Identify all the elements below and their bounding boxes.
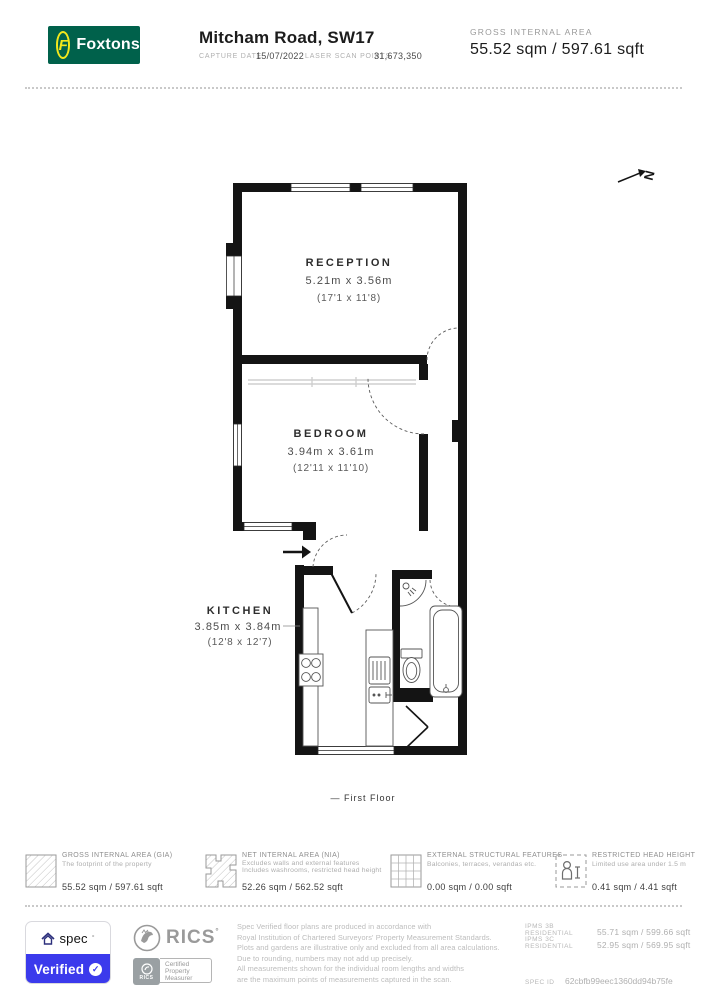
legend-item-gia: GROSS INTERNAL AREA (GIA) The footprint … <box>25 852 195 898</box>
legend-nia-desc1: Excludes walls and external features <box>242 860 382 867</box>
rics-block: RICS° RICS Certified Property Measurer <box>133 924 233 985</box>
spec-id-row: SPEC ID 62cbfb99eec1360dd94b75fe <box>525 971 673 989</box>
disclaimer-text: Spec Verified floor plans are produced i… <box>237 922 507 986</box>
ipms-3b-row: IPMS 3B RESIDENTIAL 55.71 sqm / 599.66 s… <box>525 923 690 937</box>
footer-separator <box>25 905 682 907</box>
disclaimer-line: Spec Verified floor plans are produced i… <box>237 922 507 933</box>
hatched-square-icon <box>25 854 57 888</box>
spec-verified-label: Verified <box>34 962 84 977</box>
rics-small-wordmark: RICS <box>140 975 154 981</box>
legend-gia-desc: The footprint of the property <box>62 861 202 868</box>
reception-metric: 5.21m x 3.56m <box>305 275 392 287</box>
rics-shield-icon: RICS <box>133 958 160 985</box>
rics-wordmark: RICS <box>166 927 215 948</box>
kitchen-name: KITCHEN <box>207 605 273 617</box>
spec-house-icon <box>41 932 55 945</box>
person-dashed-square-icon <box>555 854 587 888</box>
cert-line-1: Certified <box>165 961 211 968</box>
spec-verified-badge: spec° Verified ✓ <box>25 921 111 984</box>
rics-certified-badge: RICS Certified Property Measurer <box>133 958 233 985</box>
legend-nia-value: 52.26 sqm / 562.52 sqft <box>242 882 343 892</box>
legend-item-esf: EXTERNAL STRUCTURAL FEATURES Balconies, … <box>390 852 550 898</box>
hatched-plan-icon <box>205 854 237 888</box>
legend-esf-title: EXTERNAL STRUCTURAL FEATURES <box>427 852 567 859</box>
ipms-3c-label: IPMS 3C RESIDENTIAL <box>525 936 597 950</box>
disclaimer-line: Royal Institution of Chartered Surveyors… <box>237 933 507 944</box>
spec-id-label: SPEC ID <box>525 979 555 986</box>
floor-caption: — First Floor <box>330 793 395 803</box>
legend-rhh-desc: Limited use area under 1.5 m <box>592 861 707 868</box>
disclaimer-line: Due to rounding, numbers may not add up … <box>237 954 507 965</box>
cert-line-2: Property <box>165 968 211 975</box>
north-label: N <box>641 169 658 182</box>
spec-id-value: 62cbfb99eec1360dd94b75fe <box>565 976 673 986</box>
kitchen-fixtures <box>299 608 393 746</box>
bathroom-fixtures <box>400 580 462 697</box>
legend-gia-value: 55.52 sqm / 597.61 sqft <box>62 882 163 892</box>
bedroom-metric: 3.94m x 3.61m <box>287 446 374 458</box>
legend-rhh-value: 0.41 sqm / 4.41 sqft <box>592 882 677 892</box>
ipms-3c-row: IPMS 3C RESIDENTIAL 52.95 sqm / 569.95 s… <box>525 936 690 950</box>
legend-esf-value: 0.00 sqm / 0.00 sqft <box>427 882 512 892</box>
bedroom-imperial: (12'11 x 11'10) <box>293 463 369 474</box>
floorplan-page: F Foxtons Mitcham Road, SW17 CAPTURE DAT… <box>0 0 707 1000</box>
bedroom-name: BEDROOM <box>294 428 369 440</box>
reception-imperial: (17'1 x 11'8) <box>317 293 381 304</box>
disclaimer-line: Plots and gardens are illustrative only … <box>237 943 507 954</box>
reception-name: RECEPTION <box>306 257 393 269</box>
disclaimer-line: are the maximum points of measurements c… <box>237 975 507 986</box>
ipms-3c-value: 52.95 sqm / 569.95 sqft <box>597 940 690 950</box>
kitchen-metric: 3.85m x 3.84m <box>194 621 281 633</box>
cert-line-3: Measurer <box>165 975 211 982</box>
legend-item-rhh: RESTRICTED HEAD HEIGHT Limited use area … <box>555 852 695 898</box>
legend-nia-title: NET INTERNAL AREA (NIA) <box>242 852 382 859</box>
grid-square-icon <box>390 854 422 888</box>
legend-nia-desc2: Includes washrooms, restricted head heig… <box>242 867 382 874</box>
floorplan-drawing: N RECEPTION 5.21m x 3.56m (17'1 x 11'8) … <box>0 0 707 1000</box>
spec-wordmark: spec <box>59 931 87 946</box>
kitchen-imperial: (12'8 x 12'7) <box>208 637 273 648</box>
legend-gia-title: GROSS INTERNAL AREA (GIA) <box>62 852 202 859</box>
wardrobe-doors <box>248 377 416 387</box>
legend-esf-desc: Balconies, terraces, verandas etc. <box>427 861 567 868</box>
rics-lion-icon <box>133 924 161 952</box>
north-arrow-icon: N <box>618 169 658 182</box>
entrance-arrow-icon <box>283 546 311 559</box>
verified-check-icon: ✓ <box>89 963 102 976</box>
disclaimer-line: All measurements shown for the individua… <box>237 964 507 975</box>
ipms-3b-label: IPMS 3B RESIDENTIAL <box>525 923 597 937</box>
legend-item-nia: NET INTERNAL AREA (NIA) Excludes walls a… <box>205 852 380 898</box>
legend-rhh-title: RESTRICTED HEAD HEIGHT <box>592 852 707 859</box>
